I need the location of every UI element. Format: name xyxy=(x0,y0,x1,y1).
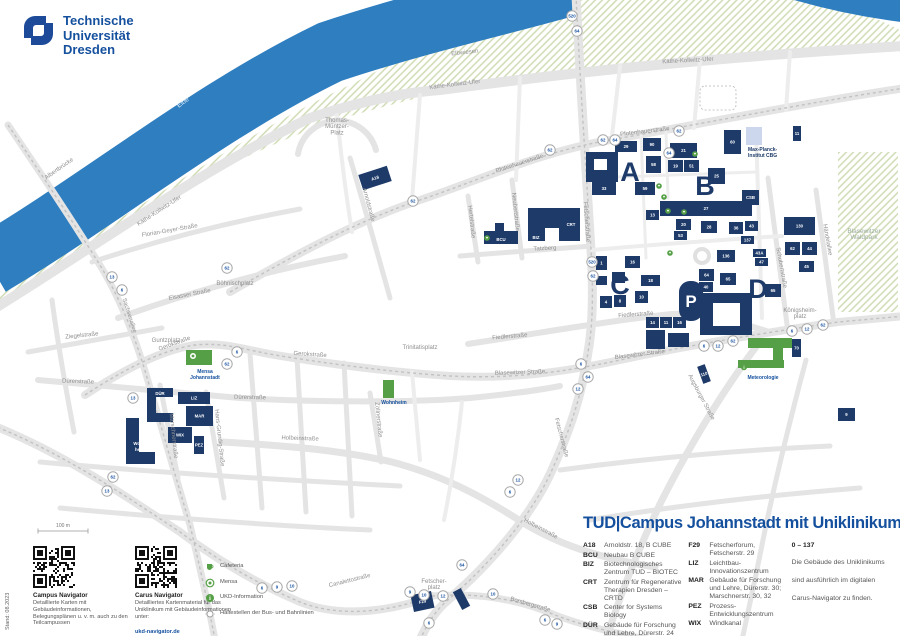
qr-module xyxy=(161,572,163,574)
qr-module xyxy=(49,580,51,582)
transit-stop-13: 13 xyxy=(107,272,117,282)
tud-logo-icon xyxy=(22,14,54,46)
qr-module xyxy=(151,562,153,564)
building-code-label: CRT xyxy=(567,222,576,227)
legend-code: F29 xyxy=(688,542,709,558)
street xyxy=(412,95,420,200)
building-code-label: BCU xyxy=(496,237,505,242)
transit-stop-number: 62 xyxy=(677,129,682,134)
building-group xyxy=(668,333,689,347)
building-code-label: BIZ xyxy=(533,235,540,240)
legend-description: Zentrum für Regenerative Therapien Dresd… xyxy=(604,579,684,603)
qr-module xyxy=(39,566,41,568)
transit-stop-10: 10 xyxy=(488,589,498,599)
qr-module xyxy=(51,586,53,588)
cafeteria-icon xyxy=(656,183,662,189)
logo-line-2: Universität xyxy=(63,29,134,44)
building-code-label: DÜR xyxy=(155,391,165,396)
legend-label-ukd-information: UKD-Information xyxy=(220,593,263,601)
qr-module xyxy=(153,574,155,576)
qr-module xyxy=(171,580,173,582)
qr-code-campus-navigator xyxy=(33,546,75,588)
qr-module xyxy=(135,568,137,570)
scale-label: 100 m xyxy=(56,523,70,529)
qr-module xyxy=(163,572,165,574)
qr-module xyxy=(57,582,59,584)
qr-module xyxy=(63,576,65,578)
qr-module xyxy=(153,566,155,568)
place-label: BlasewitzerWaldpark xyxy=(847,228,881,241)
building-group: 70 xyxy=(792,339,801,357)
transit-stop-number: 64 xyxy=(613,138,618,143)
legend-code: MAR xyxy=(688,577,709,601)
qr-module xyxy=(155,548,157,550)
qr-module xyxy=(153,546,155,548)
qr-module xyxy=(157,582,159,584)
qr-module xyxy=(157,548,159,550)
qr-module xyxy=(163,574,165,576)
qr-module xyxy=(139,566,141,568)
qr-module xyxy=(159,578,161,580)
campus-navigator-title: Campus Navigator xyxy=(33,592,133,599)
building-group: 28 xyxy=(701,221,717,233)
cafeteria-icon xyxy=(484,235,490,241)
legend-description: Prozess-Entwicklungszentrum xyxy=(709,603,787,619)
qr-module xyxy=(57,576,59,578)
qr-module xyxy=(167,572,169,574)
cafeteria-icon xyxy=(661,194,667,200)
legend-description: Windkanal xyxy=(709,620,741,628)
stop-icon xyxy=(205,609,215,619)
transit-stop-number: 62 xyxy=(225,362,230,367)
transit-stop-number: 62 xyxy=(411,199,416,204)
qr-module xyxy=(153,564,155,566)
qr-module xyxy=(175,568,177,570)
transit-stop-6: 6 xyxy=(505,487,515,497)
qr-module xyxy=(49,578,51,580)
campus-navigator-block: Campus Navigator Detaillierte Karten mit… xyxy=(33,546,133,636)
building-group: 20 xyxy=(676,219,691,230)
building-number: 10 xyxy=(639,295,644,300)
legend-entry: CSBCenter for Systems Biology xyxy=(583,604,684,620)
transit-stop-520: 520 xyxy=(587,257,597,267)
building-code-label: Wohn-heim xyxy=(133,441,147,452)
qr-module xyxy=(137,562,139,564)
qr-module xyxy=(37,550,43,556)
building-number: 40 xyxy=(704,285,709,290)
qr-module xyxy=(139,578,145,584)
building-max-planck-institut xyxy=(746,127,762,145)
legend-entry: WIXWindkanal xyxy=(688,620,787,628)
logo-line-1: Technische xyxy=(63,14,134,29)
qr-module xyxy=(51,560,53,562)
building-group: 136 xyxy=(717,250,735,262)
transit-stop-9: 9 xyxy=(405,587,415,597)
transit-stop-6: 6 xyxy=(787,326,797,336)
transit-stop-number: 62 xyxy=(548,148,553,153)
legend-entry: MARGebäude für Forschung und Lehre, Düre… xyxy=(688,577,787,601)
building-number: 62 xyxy=(790,246,795,251)
qr-module xyxy=(73,584,75,586)
building-group: A18 xyxy=(358,166,391,190)
qr-module xyxy=(163,576,165,578)
qr-module xyxy=(63,562,65,564)
cafeteria-icon xyxy=(665,208,671,214)
logo-line-3: Dresden xyxy=(63,43,134,58)
legend-code: WIX xyxy=(688,620,709,628)
legend-description: Die Gebäude des Uniklinikums sind ausfüh… xyxy=(792,559,885,602)
campus-block-letter-D: D xyxy=(748,274,768,304)
building-group: 45 xyxy=(799,261,814,272)
qr-module xyxy=(33,562,35,564)
legend-label-stops: Haltestellen der Bus- und Bahnlinien xyxy=(220,609,314,617)
transit-stop-number: 13 xyxy=(110,275,115,280)
qr-module xyxy=(37,578,43,584)
qr-module xyxy=(149,570,151,572)
legend-code: CRT xyxy=(583,579,604,603)
qr-module xyxy=(155,558,157,560)
qr-module xyxy=(43,564,45,566)
qr-module xyxy=(59,584,61,586)
campus-block-letter-B: B xyxy=(695,171,715,201)
qr-module xyxy=(169,578,171,580)
street-label: Dürerstraße xyxy=(234,395,267,402)
transit-stop-number: 13 xyxy=(131,396,136,401)
place-label: Max-Planck-Institut CBG xyxy=(748,147,778,159)
transit-stop-number: 520 xyxy=(568,14,576,19)
qr-module xyxy=(165,584,167,586)
transit-stop-62: 62 xyxy=(674,126,684,136)
legend-description: Gebäude für Forschung und Lehre, Dürerst… xyxy=(709,577,787,601)
building-group: 13 xyxy=(646,210,659,220)
street xyxy=(344,363,352,516)
qr-module xyxy=(173,580,175,582)
transit-stop-62: 62 xyxy=(728,336,738,346)
qr-module xyxy=(175,580,177,582)
legend-row-cafeteria: Cafeteria xyxy=(205,562,325,572)
qr-module xyxy=(165,572,167,574)
qr-module xyxy=(57,548,59,550)
qr-module xyxy=(61,582,63,584)
legend-description: Center for Systems Biology xyxy=(604,604,684,620)
transit-stop-12: 12 xyxy=(573,384,583,394)
map-shape xyxy=(663,196,665,198)
transit-stop-6: 6 xyxy=(699,341,709,351)
qr-module xyxy=(163,562,165,564)
qr-module xyxy=(157,568,159,570)
qr-module xyxy=(33,570,35,572)
qr-module xyxy=(73,562,75,564)
transit-stop-6: 6 xyxy=(117,285,127,295)
legend-code: CSB xyxy=(583,604,604,620)
street xyxy=(560,446,830,470)
building-number: 136 xyxy=(722,254,730,259)
roundabout xyxy=(695,249,709,263)
legend-entry: PEZProzess-Entwicklungszentrum xyxy=(688,603,787,619)
qr-module xyxy=(45,562,47,564)
qr-module xyxy=(71,562,73,564)
qr-module xyxy=(57,552,59,554)
qr-module xyxy=(163,568,165,570)
transit-stop-number: 12 xyxy=(576,387,581,392)
campus-block-letter-C: C xyxy=(610,270,630,300)
legend-code: A18 xyxy=(583,542,604,550)
building-group xyxy=(646,330,665,349)
ukd-information-icon: i xyxy=(205,593,215,603)
qr-module xyxy=(39,568,41,570)
qr-module xyxy=(165,576,167,578)
transit-stop-10: 10 xyxy=(419,590,429,600)
qr-module xyxy=(65,562,67,564)
qr-module xyxy=(67,574,69,576)
qr-module xyxy=(167,586,169,588)
legend-entry: CRTZentrum für Regenerative Therapien Dr… xyxy=(583,579,684,603)
transit-stop-62: 62 xyxy=(545,145,555,155)
qr-module xyxy=(163,570,165,572)
qr-module xyxy=(159,560,161,562)
street-label: Augsburger Straße xyxy=(686,374,715,422)
qr-module xyxy=(153,582,155,584)
legend-code: BIZ xyxy=(583,561,604,577)
qr-module xyxy=(159,566,161,568)
tud-logo-text: Technische Universität Dresden xyxy=(63,14,134,58)
qr-module xyxy=(67,564,69,566)
qr-module xyxy=(175,578,177,580)
building-number: 20 xyxy=(681,222,686,227)
qr-module xyxy=(147,566,149,568)
legend-code: 0 – 137 xyxy=(792,542,893,550)
street xyxy=(786,52,790,110)
ukd-information-icon: i xyxy=(741,364,747,370)
transit-stop-number: 12 xyxy=(805,327,810,332)
qr-module xyxy=(67,566,69,568)
transit-stop-12: 12 xyxy=(438,591,448,601)
transit-stop-6: 6 xyxy=(424,618,434,628)
building-number: MAR xyxy=(195,414,206,419)
qr-module xyxy=(41,568,43,570)
qr-module xyxy=(55,568,57,570)
qr-module xyxy=(161,562,163,564)
qr-module xyxy=(163,586,165,588)
place-label: Guntzplatz xyxy=(152,338,181,344)
qr-module xyxy=(163,582,165,584)
map-shape xyxy=(667,210,669,212)
qr-module xyxy=(37,564,39,566)
qr-module xyxy=(155,568,157,570)
street-label: Dürerstraße xyxy=(62,378,95,385)
qr-module xyxy=(153,578,155,580)
qr-module xyxy=(49,552,51,554)
qr-module xyxy=(145,564,147,566)
carus-navigator-link[interactable]: ukd-navigator.de xyxy=(135,629,180,635)
cafeteria-icon xyxy=(692,151,698,157)
building-group: 9 xyxy=(838,408,855,421)
qr-module xyxy=(157,570,159,572)
mensa-icon xyxy=(189,352,196,359)
transit-stop-64: 64 xyxy=(664,148,674,158)
building-number: 16 xyxy=(630,260,635,265)
transit-stop-number: 12 xyxy=(516,478,521,483)
qr-module xyxy=(161,566,163,568)
map-symbol-legend: Cafeteria Mensa i UKD-Information Haltes… xyxy=(205,562,325,624)
qr-module xyxy=(67,580,69,582)
qr-module xyxy=(53,570,55,572)
building-number: 64 xyxy=(704,273,709,278)
street xyxy=(250,354,262,508)
transit-stop-12: 12 xyxy=(802,324,812,334)
qr-module xyxy=(161,580,163,582)
qr-module xyxy=(61,580,63,582)
qr-module xyxy=(169,562,171,564)
qr-module xyxy=(61,576,63,578)
qr-module xyxy=(155,582,157,584)
street-label: Elsasser Straße xyxy=(168,288,212,302)
legend-entry: A18Arnoldstr. 18, B CUBE xyxy=(583,542,684,550)
qr-module xyxy=(139,564,141,566)
qr-module xyxy=(175,572,177,574)
qr-module xyxy=(171,572,173,574)
building-number: 60 xyxy=(730,140,735,145)
qr-module xyxy=(167,584,169,586)
qr-module xyxy=(55,564,57,566)
qr-module xyxy=(55,552,57,554)
qr-module xyxy=(49,564,51,566)
qr-module xyxy=(57,560,59,562)
building-group: 58 xyxy=(646,156,661,173)
building-group: 130 xyxy=(784,217,815,235)
transit-stop-62: 62 xyxy=(108,472,118,482)
qr-module xyxy=(55,580,57,582)
building-number: PEZ xyxy=(195,443,204,448)
qr-module xyxy=(173,572,175,574)
qr-module xyxy=(153,560,155,562)
qr-module xyxy=(173,570,175,572)
transit-stop-number: 64 xyxy=(575,29,580,34)
building-group: 10 xyxy=(635,291,648,303)
building-green xyxy=(383,380,394,398)
qr-module xyxy=(65,574,67,576)
building-group: 43A xyxy=(753,249,766,257)
qr-module xyxy=(65,550,71,556)
legend-column: A18Arnoldstr. 18, B CUBEBCUNeubau B CUBE… xyxy=(583,542,688,636)
building-group: 16 xyxy=(625,256,640,268)
qr-code-carus-navigator xyxy=(135,546,177,588)
qr-module xyxy=(153,558,155,560)
river-elbe xyxy=(790,0,900,4)
qr-module xyxy=(175,584,177,586)
building-group: 11 xyxy=(660,317,672,328)
qr-module xyxy=(151,582,153,584)
building-group: 14 xyxy=(646,317,659,328)
qr-module xyxy=(175,564,177,566)
street-label: Hertelstraße xyxy=(466,205,475,239)
qr-module xyxy=(169,564,171,566)
transit-stop-6: 6 xyxy=(576,359,586,369)
legend-entry: BIZBiotechnologisches Zentrum TUD – BIOT… xyxy=(583,561,684,577)
building-group: 64 xyxy=(699,269,714,281)
qr-module xyxy=(55,558,57,560)
qr-module xyxy=(151,550,153,552)
qr-module xyxy=(59,574,61,576)
qr-module xyxy=(57,580,59,582)
legend-code: LIZ xyxy=(688,560,709,576)
transit-stop-number: 12 xyxy=(716,344,721,349)
legend-entry: DÜRGebäude für Forschung und Lehre, Düre… xyxy=(583,622,684,636)
qr-module xyxy=(53,584,55,586)
qr-module xyxy=(51,576,53,578)
building-number: 27 xyxy=(704,206,709,211)
transit-stop-64: 64 xyxy=(572,26,582,36)
qr-module xyxy=(51,562,53,564)
building-number: 65 xyxy=(771,288,776,293)
street xyxy=(641,136,646,258)
legend-description: Arnoldstr. 18, B CUBE xyxy=(604,542,671,550)
transit-stop-62: 62 xyxy=(222,263,232,273)
qr-module xyxy=(57,556,59,558)
transit-stop-number: 62 xyxy=(821,323,826,328)
legend-column: 0 – 137Die Gebäude des Uniklinikums sind… xyxy=(792,542,897,636)
qr-module xyxy=(69,568,71,570)
building-group: 60 xyxy=(724,130,741,154)
building-number: 43 xyxy=(749,224,754,229)
transit-stop-13: 13 xyxy=(102,486,112,496)
building-number: 43A xyxy=(756,251,764,256)
building-number: 16 xyxy=(677,320,682,325)
street xyxy=(412,372,420,460)
qr-module xyxy=(51,564,53,566)
qr-module xyxy=(37,562,39,564)
qr-module xyxy=(141,562,143,564)
qr-module xyxy=(147,568,149,570)
map-date-stamp: Stand: 08.2023 xyxy=(5,593,11,630)
qr-module xyxy=(137,568,139,570)
qr-module xyxy=(153,562,155,564)
building-group: 47 xyxy=(755,258,768,266)
cafeteria-icon xyxy=(205,562,215,572)
qr-module xyxy=(173,582,175,584)
transit-stop-number: 62 xyxy=(601,138,606,143)
qr-module xyxy=(51,558,53,560)
building-group: 90 xyxy=(643,138,661,151)
transit-stop-number: 64 xyxy=(586,375,591,380)
building-number: 58 xyxy=(651,162,656,167)
building-group: 11 xyxy=(793,126,801,141)
legend-entry: BCUNeubau B CUBE xyxy=(583,552,684,560)
qr-module xyxy=(157,552,159,554)
qr-module xyxy=(61,562,63,564)
campus-block-letter-A: A xyxy=(620,157,640,187)
qr-module xyxy=(167,570,169,572)
qr-module xyxy=(175,582,177,584)
transit-stop-number: 64 xyxy=(667,151,672,156)
transit-stop-62: 62 xyxy=(588,271,598,281)
qr-module xyxy=(53,580,55,582)
building-number: 11 xyxy=(795,131,800,136)
street xyxy=(612,66,620,136)
parking-letter: P xyxy=(685,292,696,311)
transit-stop-number: 13 xyxy=(105,489,110,494)
qr-module xyxy=(43,568,45,570)
building-group: CSB xyxy=(742,190,759,205)
building-group: 110 xyxy=(697,364,711,384)
legend-entry: LIZLeichtbau-Innovationszentrum xyxy=(688,560,787,576)
qr-module xyxy=(169,572,171,574)
qr-module xyxy=(137,564,139,566)
place-label: Meteorologie xyxy=(747,375,778,381)
building-number: 18 xyxy=(648,278,653,283)
building-number: 25 xyxy=(714,174,719,179)
street-label: Canalettostraße xyxy=(328,573,372,589)
